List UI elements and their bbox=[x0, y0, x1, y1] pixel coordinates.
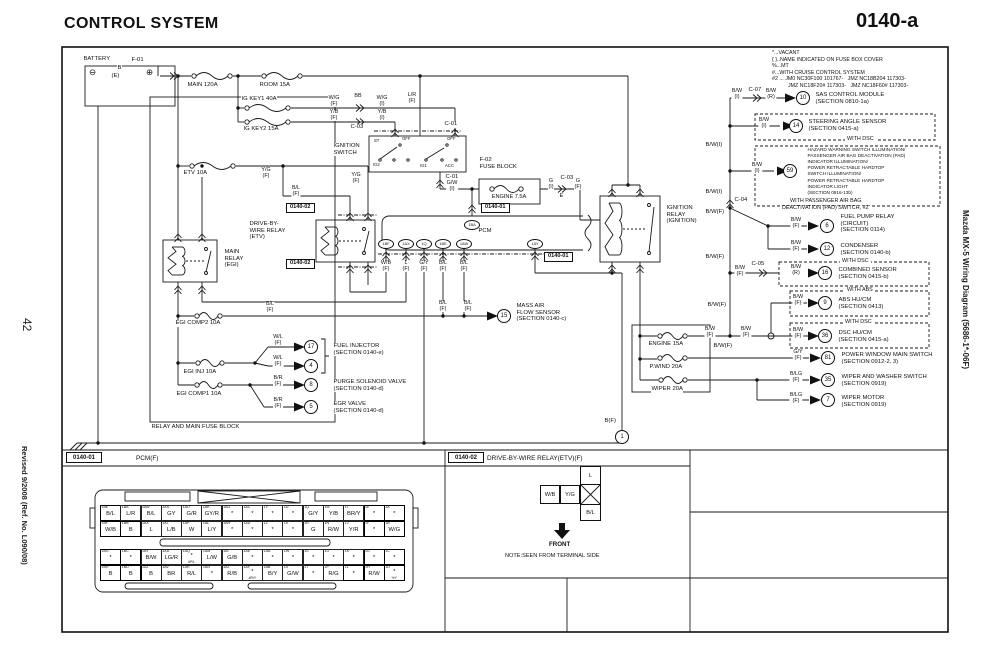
pcm-pin-1BA: 1BAL/R bbox=[120, 505, 141, 521]
page-code: 0140-a bbox=[856, 10, 918, 33]
pcm-pin-1L: 1L* bbox=[343, 565, 364, 581]
dbw-pin-L: L bbox=[580, 466, 601, 485]
diagram-label: W/L (F) bbox=[273, 356, 284, 367]
battery-minus-terminal: ⊖ bbox=[89, 68, 96, 77]
pcm-pin-1G: 1G* bbox=[364, 549, 385, 565]
pcm-pin-1C: 1C* bbox=[384, 549, 405, 565]
footer-ref-0140-02: 0140-02 bbox=[448, 452, 484, 463]
pcm-pin-1AI: 1AIG/B bbox=[222, 549, 243, 565]
pcm-label: PCM bbox=[478, 228, 492, 235]
page-number: 42 bbox=[20, 318, 34, 331]
pcm-pin-1E: 1E* bbox=[364, 505, 385, 521]
pcm-pin-1O: 1O* bbox=[323, 549, 344, 565]
pcm-pin-1AB: 1ABB/Y bbox=[262, 565, 283, 581]
diagram-label: 6 bbox=[820, 219, 834, 233]
diagram-label: 5 bbox=[304, 400, 318, 414]
dbw-pin-B/L: B/L bbox=[580, 504, 601, 521]
diagram-label: OFF bbox=[402, 137, 410, 142]
diagram-label: IG1 bbox=[420, 164, 427, 169]
purge-solenoid-valve: PURGE SOLENOID VALVE (SECTION 0140-d) bbox=[333, 379, 407, 392]
pcm-pin-1BB: 1BBB bbox=[120, 521, 141, 537]
diagram-label: WITH DSC bbox=[840, 259, 871, 264]
diagram-label: 17 bbox=[304, 340, 318, 354]
fuse-egi-comp2-10a: EGI COMP2 10A bbox=[175, 320, 221, 327]
fuse-egi-inj-10a: EGI INJ 10A bbox=[183, 369, 217, 376]
diagram-label: B/W(F) bbox=[705, 254, 725, 261]
battery-plus-terminal: ⊕ bbox=[146, 68, 153, 77]
diagram-label: B/W (F) bbox=[792, 295, 803, 306]
diagram-label: W/G (F) bbox=[328, 96, 340, 107]
pcm-pin-1AH: 1AH* bbox=[222, 521, 243, 537]
diagram-label: G (I) bbox=[548, 179, 554, 190]
diagram-label: G/Y (F) bbox=[793, 350, 803, 361]
diagram-label: B/W (F) bbox=[704, 327, 715, 338]
diagram-label: 9 bbox=[818, 296, 832, 310]
diagram-label: 4 bbox=[304, 359, 318, 373]
diagram-label: Y/G (F) bbox=[261, 168, 271, 179]
pcm-pin-1AA: 1AA* bbox=[262, 549, 283, 565]
fuse-block-f02-label: F-02 FUSE BLOCK bbox=[479, 157, 517, 170]
diagram-label: B/W (F) bbox=[790, 218, 801, 229]
pcm-pin-1Z: 1Z* bbox=[262, 521, 283, 537]
dbw-pin-Y/G: Y/G bbox=[560, 485, 580, 504]
diagram-label: B/W (R) bbox=[765, 89, 776, 100]
diagram-label: WITH DSC bbox=[843, 320, 874, 325]
diagram-label: 81 bbox=[821, 351, 835, 365]
diagram-label: B/R (F) bbox=[273, 398, 283, 409]
diagram-label: B/W(I) bbox=[705, 189, 723, 196]
legend-line: *...VACANT bbox=[772, 50, 908, 57]
diagram-label: B/W (F) bbox=[740, 327, 751, 338]
diagram-label: B/L (F) bbox=[291, 186, 300, 197]
diagram-label: 1AW bbox=[456, 239, 472, 249]
combined-sensor: COMBINED SENSOR (SECTION 0415-b) bbox=[838, 267, 897, 280]
diagram-label: 8 bbox=[304, 378, 318, 392]
pcm-pin-1AQ: 1AQ*#P/L bbox=[181, 549, 202, 565]
diagram-label: B/W (R) bbox=[790, 265, 801, 276]
pcm-pin-1AW: 1AWB/L bbox=[141, 505, 162, 521]
pcm-pin-1S: 1S* bbox=[303, 549, 324, 565]
diagram-label: 12 bbox=[820, 242, 834, 256]
diagram-label: B/L (F) bbox=[438, 301, 447, 312]
main-relay-label: MAIN RELAY (EGI) bbox=[224, 249, 244, 269]
fuse-egi-comp1-10a: EGI COMP1 10A bbox=[176, 391, 222, 398]
diagram-label: WITH ABS bbox=[845, 288, 875, 293]
diagram-label: DEACTIVATION (PAD) SWITCH, #2 bbox=[780, 206, 871, 211]
pcm-pin-1AC: 1AC* bbox=[242, 505, 263, 521]
fuse-wiper-20a: WIPER 20A bbox=[651, 386, 683, 393]
diagram-label: 16 bbox=[818, 266, 832, 280]
fuse-engine-7-5a: ENGINE 7.5A bbox=[491, 194, 527, 200]
diagram-label: 1BF bbox=[378, 239, 394, 249]
egr-valve: EGR VALVE (SECTION 0140-d) bbox=[333, 401, 384, 414]
fuel-pump-relay: FUEL PUMP RELAY (CIRCUIT) (SECTION 0114) bbox=[840, 214, 895, 234]
pcm-pin-1BF: 1BFW/B bbox=[100, 521, 121, 537]
diagram-label: G/W (I) bbox=[446, 181, 458, 192]
pcm-pin-1V: 1V* bbox=[282, 521, 303, 537]
pcm-pin-1AE: 1AE* bbox=[242, 549, 263, 565]
diagram-label: B/W (F) bbox=[734, 266, 745, 277]
diagram-label: B/L (F) bbox=[438, 261, 447, 272]
fuse-main-120a: MAIN 120A bbox=[187, 82, 218, 89]
connector-c03: C-03 bbox=[350, 124, 364, 131]
revision-note: Revised 9/2008 (Ref. No. L090/08) bbox=[20, 446, 29, 565]
diagram-label: 14 bbox=[789, 119, 803, 133]
connector-f01: F-01 bbox=[131, 57, 144, 64]
pcm-pin-1A: 1A* bbox=[384, 505, 405, 521]
pcm-pin-1M: 1MY/B bbox=[323, 505, 344, 521]
dbw-vacant-cell bbox=[580, 484, 601, 505]
fuse-etv-10a: ETV 10A bbox=[183, 170, 208, 177]
diagram-label: W/G (I) bbox=[376, 96, 388, 107]
dbw-pin-W/B: W/B bbox=[540, 485, 560, 504]
pcm-pin-1B: 1BW/G bbox=[384, 521, 405, 537]
ref-0140-01: 0140-01 bbox=[544, 252, 573, 262]
diagram-label: W/L (F) bbox=[273, 335, 284, 346]
connector-c07: C-07 bbox=[748, 87, 762, 94]
power-window-main-switch: POWER WINDOW MAIN SWITCH (SECTION 0912-2… bbox=[841, 352, 933, 365]
pcm-pin-1W: 1W* bbox=[282, 549, 303, 565]
pcm-pin-1AM: 1AML/W bbox=[201, 549, 222, 565]
diagram-label: B/R (F) bbox=[273, 376, 283, 387]
footer-ref-0140-01: 0140-01 bbox=[66, 452, 102, 463]
ground-point-1: 1 bbox=[615, 430, 629, 444]
pcm-pin-1AO: 1AOG/R bbox=[181, 505, 202, 521]
pcm-pin-1I: 1IBR/Y bbox=[343, 505, 364, 521]
terminal-side-note: NOTE:SEEN FROM TERMINAL SIDE bbox=[505, 553, 599, 559]
pcm-pin-1AL: 1ALL/Y bbox=[201, 521, 222, 537]
pcm-pin-1AN: 1AN* bbox=[201, 565, 222, 581]
diagram-label: IG2 bbox=[373, 163, 380, 168]
pcm-pin-1BH: 1BHB bbox=[100, 565, 121, 581]
ref-0140-02: 0140-02 bbox=[286, 203, 315, 213]
battery-label: BATTERY bbox=[83, 56, 111, 63]
diagram-label: B bbox=[117, 65, 122, 72]
diagram-label: ST bbox=[374, 139, 379, 144]
ref-0140-02: 0140-02 bbox=[286, 259, 315, 269]
diagram-label: 7 bbox=[821, 393, 835, 407]
pcm-pin-1Q: 1QG/Y bbox=[303, 505, 324, 521]
pcm-pin-1AD: 1AD* bbox=[242, 521, 263, 537]
ignition-switch-label: IGNITION SWITCH bbox=[333, 143, 360, 156]
diagram-label: B(F) bbox=[604, 418, 616, 425]
pcm-pin-1AS: 1ASGY bbox=[161, 505, 182, 521]
legend-line: #...WITH CRUISE CONTROL SYSTEM bbox=[772, 70, 908, 77]
fuse-room-15a: ROOM 15A bbox=[259, 82, 290, 89]
pcm-pin-1AK: 1AKGY/R bbox=[201, 505, 222, 521]
diagram-label: B/L (F) bbox=[463, 301, 472, 312]
diagram-label: B/W (I) bbox=[751, 163, 762, 174]
diagram-label: 1BA bbox=[464, 220, 480, 230]
diagram-label: 35 bbox=[821, 373, 835, 387]
pcm-pin-1U: 1U* bbox=[282, 505, 303, 521]
page-title: CONTROL SYSTEM bbox=[64, 15, 219, 33]
legend: *...VACANT{ }..NAME INDICATED ON FUSE BO… bbox=[772, 50, 908, 90]
pcm-pin-1AR: 1ARR/L bbox=[181, 565, 202, 581]
diagram-label: 10 bbox=[796, 91, 810, 105]
pcm-pin-1X: 1XG/W bbox=[282, 565, 303, 581]
diagram-label: Y/B (I) bbox=[377, 110, 387, 121]
dsc-hu-cm: DSC HU/CM (SECTION 0415-a) bbox=[838, 330, 889, 343]
pcm-pin-1BG: 1BG* bbox=[100, 549, 121, 565]
diagram-label: W/B (F) bbox=[380, 261, 391, 272]
diagram-label: ACC bbox=[445, 164, 454, 169]
diagram-label: 36 bbox=[818, 329, 832, 343]
fuse-engine-15a: ENGINE 15A bbox=[648, 341, 684, 348]
diagram-label: WITH DSC bbox=[845, 137, 876, 142]
legend-line: %...MT bbox=[772, 63, 908, 70]
diagram-label: Y/G (F) bbox=[351, 173, 361, 184]
pcm-pin-1D: 1D*%Y bbox=[384, 565, 405, 581]
diagram-label: Y/B (F) bbox=[329, 110, 339, 121]
diagram-label: B/W (F) bbox=[790, 241, 801, 252]
pcm-pin-1AU: 1AULG/R bbox=[161, 549, 182, 565]
pcm-pin-1T: 1T* bbox=[303, 565, 324, 581]
mass-air-flow-sensor: MASS AIR FLOW SENSOR (SECTION 0140-c) bbox=[516, 303, 567, 323]
pcm-pin-1AY: 1AYB/W bbox=[141, 549, 162, 565]
pcm-pin-1K: 1K* bbox=[343, 549, 364, 565]
diagram-label: BB bbox=[354, 94, 362, 100]
diagram-label: 15 bbox=[497, 309, 511, 323]
pcm-pin-1AV: 1AVBR bbox=[161, 565, 182, 581]
ignition-relay-label: IGNITION RELAY (IGNITION) bbox=[666, 205, 697, 225]
hardtop-pad-illumination: HAZARD WARNING SWITCH ILLUMINATION/ PASS… bbox=[807, 147, 906, 196]
diagram-label: OFF bbox=[447, 137, 455, 142]
pcm-pin-1AZ: 1AZB bbox=[141, 565, 162, 581]
diagram-label: (E) bbox=[111, 73, 120, 80]
pcm-pin-1BD: 1BDB bbox=[120, 565, 141, 581]
pcm-pin-1F: 1F* bbox=[364, 521, 385, 537]
condenser: CONDENSER (SECTION 0140-b) bbox=[840, 243, 891, 256]
pcm-pin-1AP: 1APW bbox=[181, 521, 202, 537]
pcm-pin-1Y: 1Y* bbox=[262, 505, 283, 521]
diagram-label: B/W(I) bbox=[705, 142, 723, 149]
diagram-label: L (F) bbox=[402, 261, 410, 272]
relay-main-fuse-block-label: RELAY AND MAIN FUSE BLOCK bbox=[151, 424, 240, 431]
legend-line: JMZ NC18F20# 117303- JMZ NC18F60# 117303… bbox=[788, 83, 908, 90]
diagram-label: B/W(F) bbox=[707, 302, 727, 309]
pcm-pin-1N: 1NR/W bbox=[323, 521, 344, 537]
diagram-label: B/W(F) bbox=[705, 209, 725, 216]
diagram-label: B/W (I) bbox=[758, 118, 769, 129]
connector-c04: C-04 bbox=[734, 197, 748, 204]
diagram-label: 59 bbox=[783, 164, 797, 178]
legend-line: { }..NAME INDICATED ON FUSE BOX COVER bbox=[772, 57, 908, 64]
wiper-and-washer-switch: WIPER AND WASHER SWITCH (SECTION 0919) bbox=[841, 374, 927, 387]
pcm-pin-1BC: 1BC* bbox=[120, 549, 141, 565]
diagram-label: B/L (F) bbox=[459, 261, 468, 272]
diagram-label: B/LG (F) bbox=[789, 393, 802, 404]
diagram-label: B/LG (F) bbox=[789, 372, 802, 383]
fuse-pwind-20a: P.WIND 20A bbox=[649, 364, 683, 371]
pcm-pin-1AJ: 1AJR/B bbox=[222, 565, 243, 581]
ref-0140-01: 0140-01 bbox=[481, 203, 510, 213]
wiper-motor: WIPER MOTOR (SECTION 0919) bbox=[841, 395, 887, 408]
legend-line: #2 ... JM0 NC30F100 101767- JMZ NC18B204… bbox=[772, 76, 908, 83]
drive-by-wire-relay-label: DRIVE-BY- WIRE RELAY (ETV) bbox=[249, 221, 286, 241]
diagram-label: 1BE bbox=[435, 239, 451, 249]
diagram-label: B/W (F) bbox=[792, 328, 803, 339]
pcm-pin-1AF: 1AF*#R/Y bbox=[242, 565, 263, 581]
fuse-ig-key1-40a: IG KEY1 40A bbox=[241, 96, 277, 103]
steering-angle-sensor: STEERING ANGLE SENSOR (SECTION 0415-a) bbox=[808, 119, 887, 132]
diagram-label: L/R (F) bbox=[407, 93, 416, 104]
pcm-pin-1J: 1JY/R bbox=[343, 521, 364, 537]
diagram-label: 1AY bbox=[527, 239, 543, 249]
connector-c05: C-05 bbox=[751, 261, 765, 268]
diagram-label: 1AX bbox=[398, 239, 414, 249]
diagram-label: G/Y (F) bbox=[419, 261, 429, 272]
sas-control-module: SAS CONTROL MODULE (SECTION 0810-1a) bbox=[815, 92, 885, 105]
diagram-label: G (F) bbox=[574, 179, 582, 190]
pcm-pin-1AG: 1AG* bbox=[222, 505, 243, 521]
pcm-pin-1BE: 1BEB/L bbox=[100, 505, 121, 521]
abs-hu-cm: ABS HU/CM (SECTION 0413) bbox=[838, 297, 884, 310]
diagram-label: 1Q bbox=[416, 239, 432, 249]
pcm-pin-1P: 1PR/G bbox=[323, 565, 344, 581]
wiring-diagram-page: .wl{stroke:#1a1a1a;stroke-width:.9;fill:… bbox=[0, 0, 1000, 648]
diagram-label: WITH PASSENGER AIR BAG bbox=[788, 199, 864, 204]
footer-dbw-connector-title: DRIVE-BY-WIRE RELAY(ETV)(F) bbox=[487, 456, 583, 462]
front-label: FRONT bbox=[549, 541, 570, 548]
pcm-pin-1AX: 1AXL bbox=[141, 521, 162, 537]
diagram-label: B/W (I) bbox=[731, 89, 742, 100]
diagram-label: B/W(F) bbox=[713, 343, 733, 350]
fuel-injector: FUEL INJECTOR (SECTION 0140-e) bbox=[333, 343, 384, 356]
diagram-label: B/L (F) bbox=[265, 302, 274, 313]
fuse-ig-key2-15a: IG KEY2 15A bbox=[243, 126, 279, 133]
diagram-label: C-03 bbox=[560, 175, 574, 182]
pcm-pin-1R: 1RG bbox=[303, 521, 324, 537]
pcm-pin-1AT: 1ATL/B bbox=[161, 521, 182, 537]
footer-pcm-connector-title: PCM(F) bbox=[136, 456, 158, 462]
manual-side-title: Mazda MX-5 Wiring Diagram (5686-1*-06F) bbox=[961, 210, 970, 369]
diagram-label: E bbox=[559, 193, 564, 200]
connector-c01: C-01 bbox=[444, 121, 458, 128]
pcm-pin-1H: 1HR/W bbox=[364, 565, 385, 581]
